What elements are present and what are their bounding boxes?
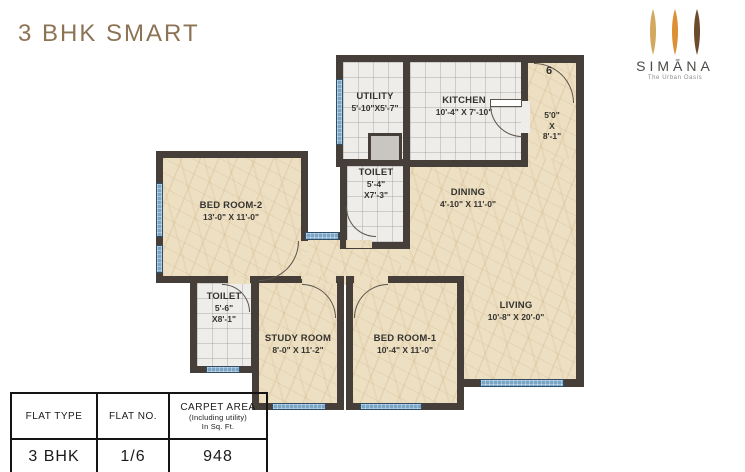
window xyxy=(272,403,326,410)
petals-icon xyxy=(642,8,708,56)
brand-name: SIMĀNA xyxy=(615,58,735,74)
label-foyer: 5'0" X 8'-1" xyxy=(530,110,574,142)
value-carpet-area: 948 xyxy=(169,439,267,472)
sink-platform xyxy=(368,133,402,163)
brand-logo: SIMĀNA The Urban Oasis xyxy=(615,8,735,81)
door-gap xyxy=(354,276,388,284)
table-header-row: FLAT TYPE FLAT NO. CARPET AREA (Includin… xyxy=(11,393,267,439)
value-flat-no: 1/6 xyxy=(97,439,169,472)
flat-spec-table: FLAT TYPE FLAT NO. CARPET AREA (Includin… xyxy=(10,392,268,472)
window xyxy=(480,379,564,387)
door-gap xyxy=(228,276,250,284)
header-carpet-area: CARPET AREA (Including utility) In Sq. F… xyxy=(169,393,267,439)
petal-left xyxy=(650,9,656,55)
header-flat-no: FLAT NO. xyxy=(97,393,169,439)
unit-number: 6 xyxy=(546,65,552,77)
label-kitchen: KITCHEN 10'-4" X 7'-10" xyxy=(408,95,520,118)
value-flat-type: 3 BHK xyxy=(11,439,97,472)
door-gap xyxy=(302,276,336,284)
header-flat-type: FLAT TYPE xyxy=(11,393,97,439)
window xyxy=(206,366,240,373)
door-gap xyxy=(301,241,308,279)
label-utility: UTILITY 5'-10"X5'-7" xyxy=(334,91,416,114)
label-bedroom-2: BED ROOM-2 13'-0" X 11'-0" xyxy=(168,200,294,223)
label-toilet-lower: TOILET 5'-6" X8'-1" xyxy=(194,291,254,324)
page-title: 3 BHK SMART xyxy=(18,20,200,48)
label-living: LIVING 10'-8" X 20'-0" xyxy=(453,300,579,323)
petal-middle xyxy=(672,9,678,55)
petal-right xyxy=(694,9,700,55)
floor-plan: 6 UTILITY 5'-10"X5'-7" KITCHEN 10'-4" X … xyxy=(148,55,584,415)
brand-tagline: The Urban Oasis xyxy=(615,75,735,81)
window xyxy=(305,232,339,240)
door-gap xyxy=(521,101,530,133)
wall-segment xyxy=(576,55,584,387)
label-toilet-upper: TOILET 5'-4" X7'-3" xyxy=(345,167,407,200)
window xyxy=(156,245,163,273)
window xyxy=(156,183,163,237)
door-gap xyxy=(346,240,372,248)
window xyxy=(360,403,422,410)
label-bedroom-1: BED ROOM-1 10'-4" X 11'-0" xyxy=(346,333,464,356)
label-dining: DINING 4'-10" X 11'-0" xyxy=(403,187,533,210)
brochure-page: 3 BHK SMART SIMĀNA The Urban Oasis xyxy=(0,0,745,472)
table-value-row: 3 BHK 1/6 948 xyxy=(11,439,267,472)
label-study: STUDY ROOM 8'-0" X 11'-2" xyxy=(248,333,348,356)
